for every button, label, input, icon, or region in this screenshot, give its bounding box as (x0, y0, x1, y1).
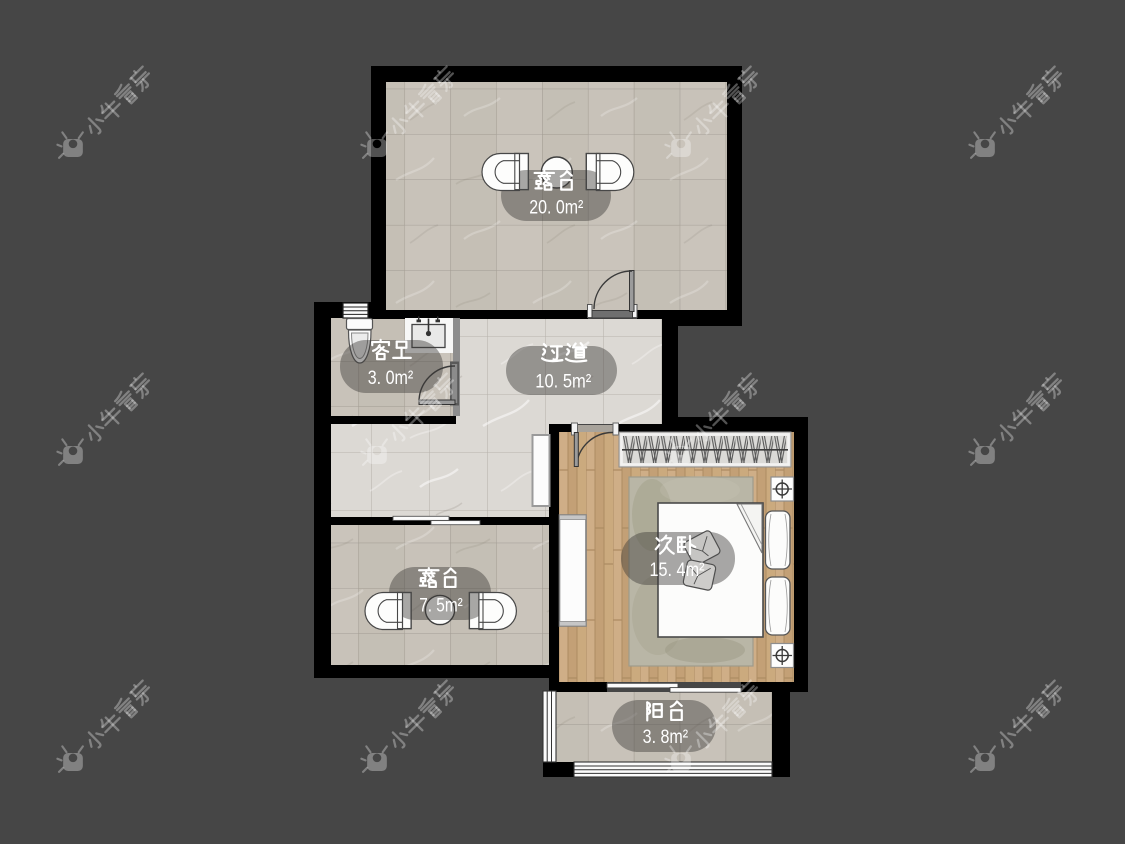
svg-text:10. 5m²: 10. 5m² (535, 371, 591, 392)
svg-text:15. 4m²: 15. 4m² (650, 560, 705, 581)
svg-text:7. 5m²: 7. 5m² (419, 595, 463, 616)
svg-text:3. 0m²: 3. 0m² (368, 368, 414, 389)
svg-text:3. 8m²: 3. 8m² (643, 727, 689, 748)
svg-text:20. 0m²: 20. 0m² (529, 198, 583, 219)
